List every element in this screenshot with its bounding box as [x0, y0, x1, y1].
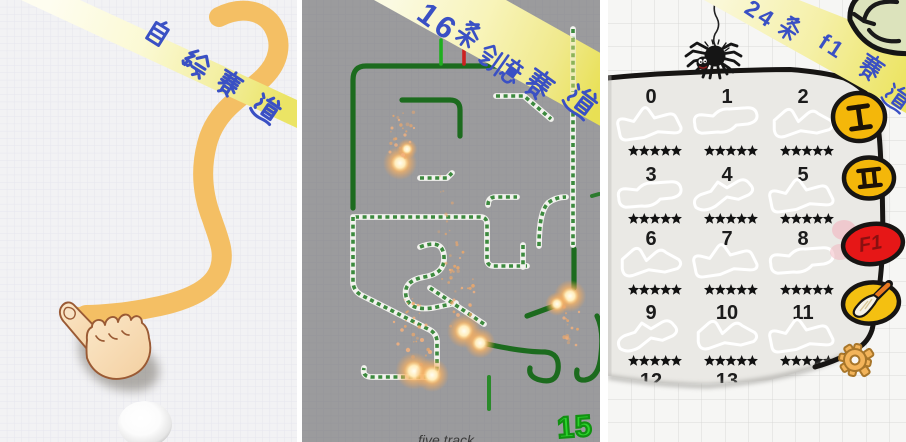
- svg-text:8: 8: [797, 228, 808, 250]
- svg-text:five track: five track: [418, 432, 475, 442]
- svg-text:0: 0: [645, 86, 656, 108]
- svg-text:F1: F1: [857, 231, 884, 257]
- svg-text:2: 2: [797, 86, 808, 108]
- svg-text:10: 10: [716, 302, 738, 324]
- svg-text:15: 15: [556, 410, 594, 442]
- svg-text:4: 4: [721, 164, 733, 186]
- svg-text:1: 1: [721, 86, 732, 108]
- svg-text:9: 9: [645, 302, 656, 324]
- svg-text:6: 6: [645, 228, 656, 250]
